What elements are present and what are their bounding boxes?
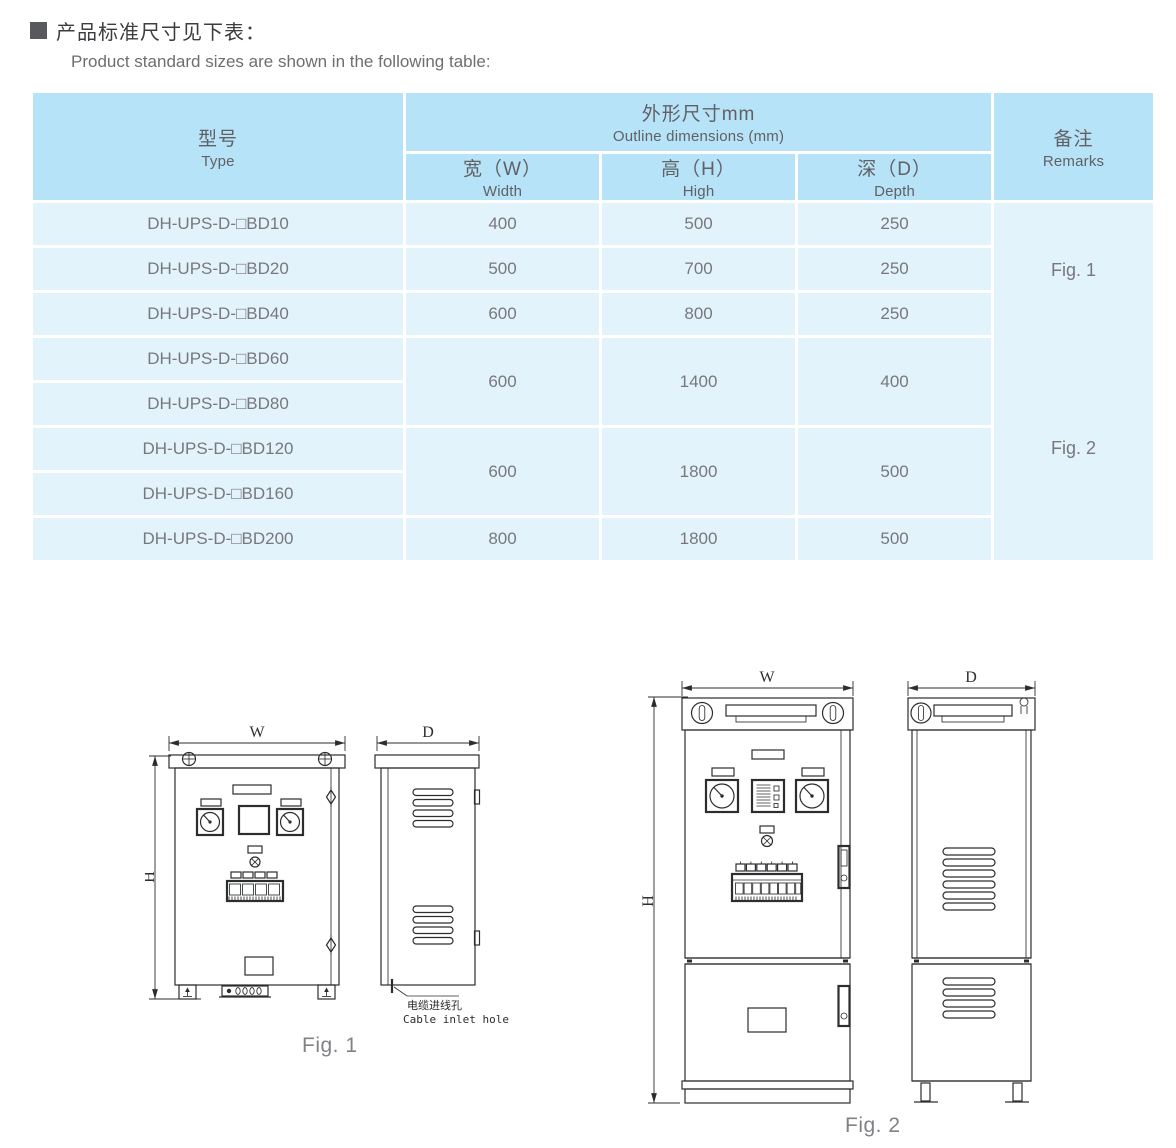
top-bar-lip <box>942 716 1004 722</box>
cable-gland-plate <box>219 986 271 997</box>
depth-cell: 250 <box>798 293 991 335</box>
gauge-icon <box>277 809 303 835</box>
fig2-dimension-d: D <box>908 669 1035 696</box>
terminal-row <box>231 872 277 878</box>
depth-cell: 500 <box>798 428 991 515</box>
high-cell: 1400 <box>602 338 795 425</box>
svg-text:D: D <box>422 724 434 741</box>
fig1-drawing: W H D <box>145 693 545 1051</box>
remarks-cell: Fig. 1 Fig. 2 <box>994 203 1153 560</box>
cabinet-body <box>175 768 339 985</box>
lower-cabinet <box>685 964 850 1081</box>
table-row: DH-UPS-D-□BD40 600 800 250 <box>33 293 1153 335</box>
fig1-front-view <box>169 752 345 999</box>
base-plinth <box>682 1081 853 1103</box>
indicator-lamp-icon <box>762 836 773 847</box>
top-cap <box>682 698 853 730</box>
high-cell: 1800 <box>602 428 795 515</box>
nameplate <box>752 750 784 759</box>
fig2-dimension-h: H <box>640 697 688 1103</box>
louver-vents <box>413 906 453 944</box>
col-header-high: 高（H） High <box>602 154 795 200</box>
gauge-label <box>201 799 221 806</box>
lower-window <box>748 1008 786 1032</box>
bottom-window <box>245 957 273 975</box>
table-row: DH-UPS-D-□BD60 600 1400 400 <box>33 338 1153 380</box>
door-handle <box>839 986 850 1026</box>
top-bar-lip <box>736 716 806 722</box>
top-cap <box>908 698 1035 730</box>
fig2-drawing: W H D <box>640 656 1070 1118</box>
spec-table-wrapper: 型号 Type 外形尺寸mm Outline dimensions (mm) 备… <box>33 93 1153 575</box>
catalog-page: 产品标准尺寸见下表： Product standard sizes are sh… <box>0 0 1176 1148</box>
high-cell: 800 <box>602 293 795 335</box>
terminal-block <box>732 874 802 901</box>
mounting-foot <box>318 985 335 999</box>
col-header-type: 型号 Type <box>33 93 403 200</box>
cabinet-seam <box>685 958 850 964</box>
high-cell: 500 <box>602 203 795 245</box>
spec-table: 型号 Type 外形尺寸mm Outline dimensions (mm) 备… <box>33 93 1153 563</box>
keyhole-slot-icon <box>319 752 332 766</box>
page-title: 产品标准尺寸见下表： <box>56 16 266 45</box>
col-header-width: 宽（W） Width <box>406 154 599 200</box>
base-legs <box>912 1081 1031 1102</box>
terminal-block <box>227 881 283 901</box>
svg-text:W: W <box>249 724 265 741</box>
fig1-dimension-h: H <box>145 756 201 999</box>
fig2-front-view <box>682 698 853 1103</box>
side-body <box>381 768 475 985</box>
width-cell: 600 <box>406 293 599 335</box>
fig1-dimension-d: D <box>377 724 479 751</box>
indicator-lamp-icon <box>250 857 260 867</box>
type-cell: DH-UPS-D-□BD120 <box>33 428 403 470</box>
gauge-label <box>802 768 824 776</box>
remarks-fig2: Fig. 2 <box>994 337 1153 560</box>
table-row: DH-UPS-D-□BD120 600 1800 500 <box>33 428 1153 470</box>
mounting-foot <box>179 985 196 999</box>
width-cell: 500 <box>406 248 599 290</box>
width-cell: 600 <box>406 338 599 425</box>
remarks-fig1: Fig. 1 <box>994 203 1153 337</box>
fig2-side-view <box>908 698 1035 1102</box>
digital-meter-icon <box>752 780 784 812</box>
door-handle <box>839 846 850 888</box>
fig1-dimension-w: W <box>169 724 345 751</box>
eye-bolt-icon <box>823 703 844 724</box>
svg-text:H: H <box>640 895 657 907</box>
upper-cabinet <box>685 730 850 958</box>
gauge-label <box>281 799 301 806</box>
col-header-outline: 外形尺寸mm Outline dimensions (mm) <box>406 93 991 151</box>
gauge-icon <box>197 809 223 835</box>
louver-vents <box>943 978 995 1018</box>
svg-text:W: W <box>759 669 775 686</box>
width-cell: 800 <box>406 518 599 560</box>
section-title-cn: 产品标准尺寸见下表： <box>30 16 491 45</box>
top-bar <box>726 705 816 716</box>
svg-text:H: H <box>145 871 158 883</box>
width-cell: 600 <box>406 428 599 515</box>
depth-cell: 500 <box>798 518 991 560</box>
type-cell: DH-UPS-D-□BD20 <box>33 248 403 290</box>
eye-bolt-icon <box>692 703 713 724</box>
eye-bolt-icon <box>911 703 931 723</box>
cable-inlet-callout: 电缆进线孔 Cable inlet hole <box>392 979 509 1026</box>
gauge-icon <box>706 780 738 812</box>
fig1-caption: Fig. 1 <box>302 1034 358 1058</box>
high-cell: 700 <box>602 248 795 290</box>
fig2-caption: Fig. 2 <box>845 1114 901 1138</box>
table-row: DH-UPS-D-□BD10 400 500 250 Fig. 1 Fig. 2 <box>33 203 1153 245</box>
gauge-icon <box>796 780 828 812</box>
section-title: 产品标准尺寸见下表： Product standard sizes are sh… <box>30 16 491 72</box>
svg-text:电缆进线孔: 电缆进线孔 <box>407 998 462 1012</box>
type-cell: DH-UPS-D-□BD60 <box>33 338 403 380</box>
louver-vents <box>413 789 453 827</box>
section-bullet-icon <box>30 22 47 39</box>
lifting-hook <box>1020 698 1028 714</box>
table-row: DH-UPS-D-□BD200 800 1800 500 <box>33 518 1153 560</box>
page-subtitle: Product standard sizes are shown in the … <box>71 52 491 72</box>
col-header-remarks: 备注 Remarks <box>994 93 1153 200</box>
terminal-row <box>736 862 797 872</box>
indicator-label <box>248 846 262 853</box>
fig2-dimension-w: W <box>682 669 853 696</box>
type-cell: DH-UPS-D-□BD160 <box>33 473 403 515</box>
lower-body <box>912 964 1031 1081</box>
depth-cell: 250 <box>798 203 991 245</box>
high-cell: 1800 <box>602 518 795 560</box>
depth-cell: 400 <box>798 338 991 425</box>
svg-text:D: D <box>965 669 977 686</box>
depth-cell: 250 <box>798 248 991 290</box>
type-cell: DH-UPS-D-□BD80 <box>33 383 403 425</box>
upper-body <box>912 730 1031 958</box>
cabinet-seam <box>912 958 1031 964</box>
meter-window <box>239 806 269 834</box>
keyhole-slot-icon <box>183 752 196 766</box>
type-cell: DH-UPS-D-□BD40 <box>33 293 403 335</box>
nameplate <box>233 785 271 794</box>
svg-text:Cable inlet hole: Cable inlet hole <box>403 1013 509 1026</box>
type-cell: DH-UPS-D-□BD10 <box>33 203 403 245</box>
gauge-label <box>712 768 734 776</box>
col-header-depth: 深（D） Depth <box>798 154 991 200</box>
type-cell: DH-UPS-D-□BD200 <box>33 518 403 560</box>
top-bar <box>934 705 1012 716</box>
width-cell: 400 <box>406 203 599 245</box>
louver-vents <box>943 848 995 910</box>
side-top-cap <box>375 755 479 768</box>
fig1-side-view: 电缆进线孔 Cable inlet hole <box>375 755 509 1026</box>
indicator-label <box>760 826 774 833</box>
table-row: DH-UPS-D-□BD20 500 700 250 <box>33 248 1153 290</box>
